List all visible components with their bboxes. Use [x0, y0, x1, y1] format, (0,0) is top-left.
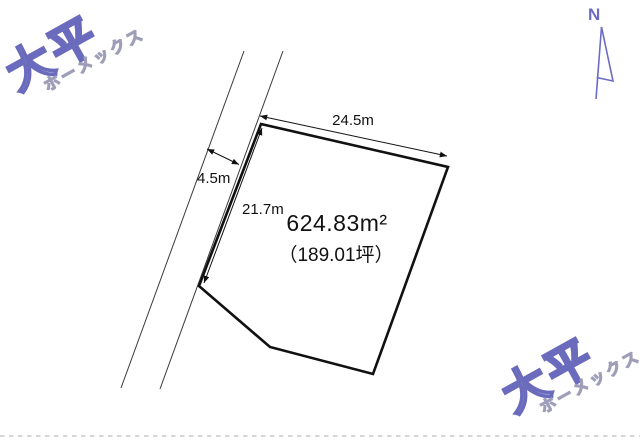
dimension-label-road-width: 4.5m — [197, 170, 230, 187]
area-tsubo: （189.01坪） — [278, 240, 393, 267]
area-square-meters: 624.83m² — [286, 210, 387, 237]
north-arrow-icon — [596, 27, 613, 99]
land-plot-diagram: 大平 ホーメックス 大平 ホーメックス N 24.5 — [0, 0, 640, 443]
dimension-label-top: 24.5m — [332, 112, 374, 129]
dimension-label-left: 21.7m — [242, 201, 284, 218]
compass-north-label: N — [588, 5, 600, 25]
dimension-arrow-road-width — [207, 149, 239, 165]
